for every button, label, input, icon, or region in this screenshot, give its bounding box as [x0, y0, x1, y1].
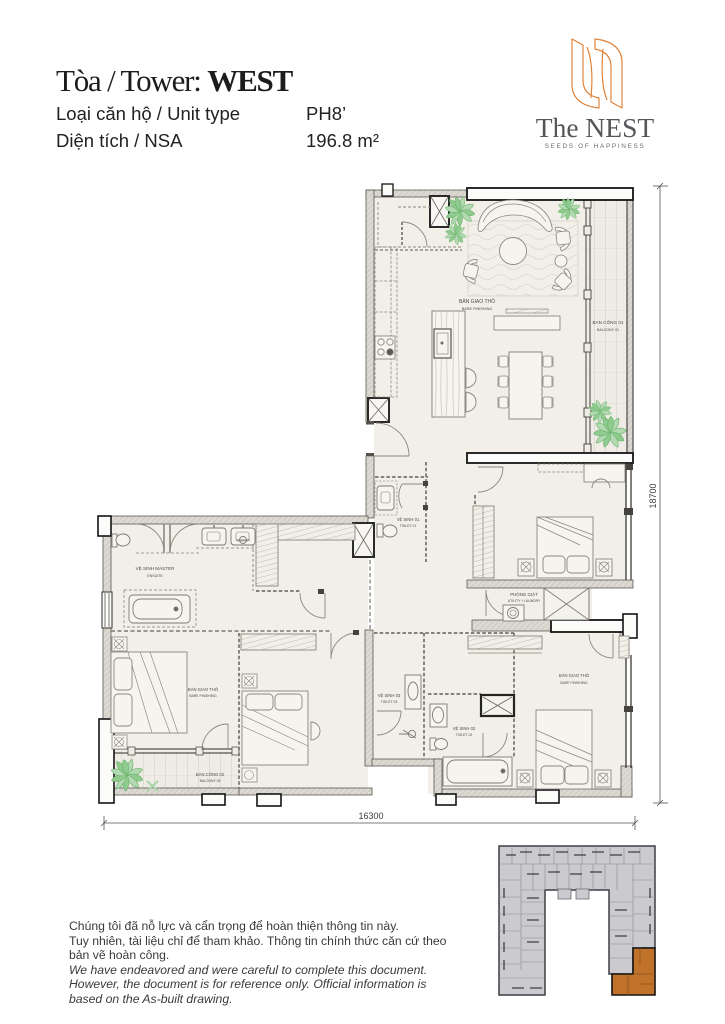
svg-text:BAN CÔNG 02: BAN CÔNG 02 — [196, 772, 225, 777]
svg-text:BALCONY 02: BALCONY 02 — [200, 779, 221, 783]
svg-text:BÀN GIAO THÔ: BÀN GIAO THÔ — [459, 298, 495, 305]
svg-text:PHÒNG GIẶT: PHÒNG GIẶT — [510, 592, 538, 597]
svg-text:TOILET 02: TOILET 02 — [456, 733, 473, 737]
svg-text:TOILET 01: TOILET 01 — [400, 524, 417, 528]
svg-text:BAN CÔNG 01: BAN CÔNG 01 — [593, 319, 624, 325]
svg-text:BALCONY 01: BALCONY 01 — [597, 328, 619, 332]
svg-text:BÀN GIAO THÔ: BÀN GIAO THÔ — [188, 687, 219, 692]
svg-text:UTILITY + LAUNDRY: UTILITY + LAUNDRY — [508, 599, 541, 603]
svg-text:VỆ SINH 01: VỆ SINH 01 — [397, 517, 420, 522]
svg-text:BARE FINISHING: BARE FINISHING — [560, 681, 588, 685]
svg-text:BARE FINISHING: BARE FINISHING — [189, 694, 217, 698]
svg-text:BÀN GIAO THÔ: BÀN GIAO THÔ — [559, 673, 590, 678]
svg-text:18700: 18700 — [648, 483, 658, 508]
svg-text:ENSUITE: ENSUITE — [147, 574, 163, 578]
svg-text:16300: 16300 — [358, 811, 383, 821]
svg-text:TOILET 03: TOILET 03 — [381, 700, 398, 704]
svg-text:VỆ SINH 03: VỆ SINH 03 — [378, 693, 401, 698]
svg-text:VỆ SINH 02: VỆ SINH 02 — [453, 726, 476, 731]
svg-text:BARE FINISHING: BARE FINISHING — [462, 307, 493, 311]
svg-text:VỆ SINH MASTER: VỆ SINH MASTER — [136, 564, 175, 571]
